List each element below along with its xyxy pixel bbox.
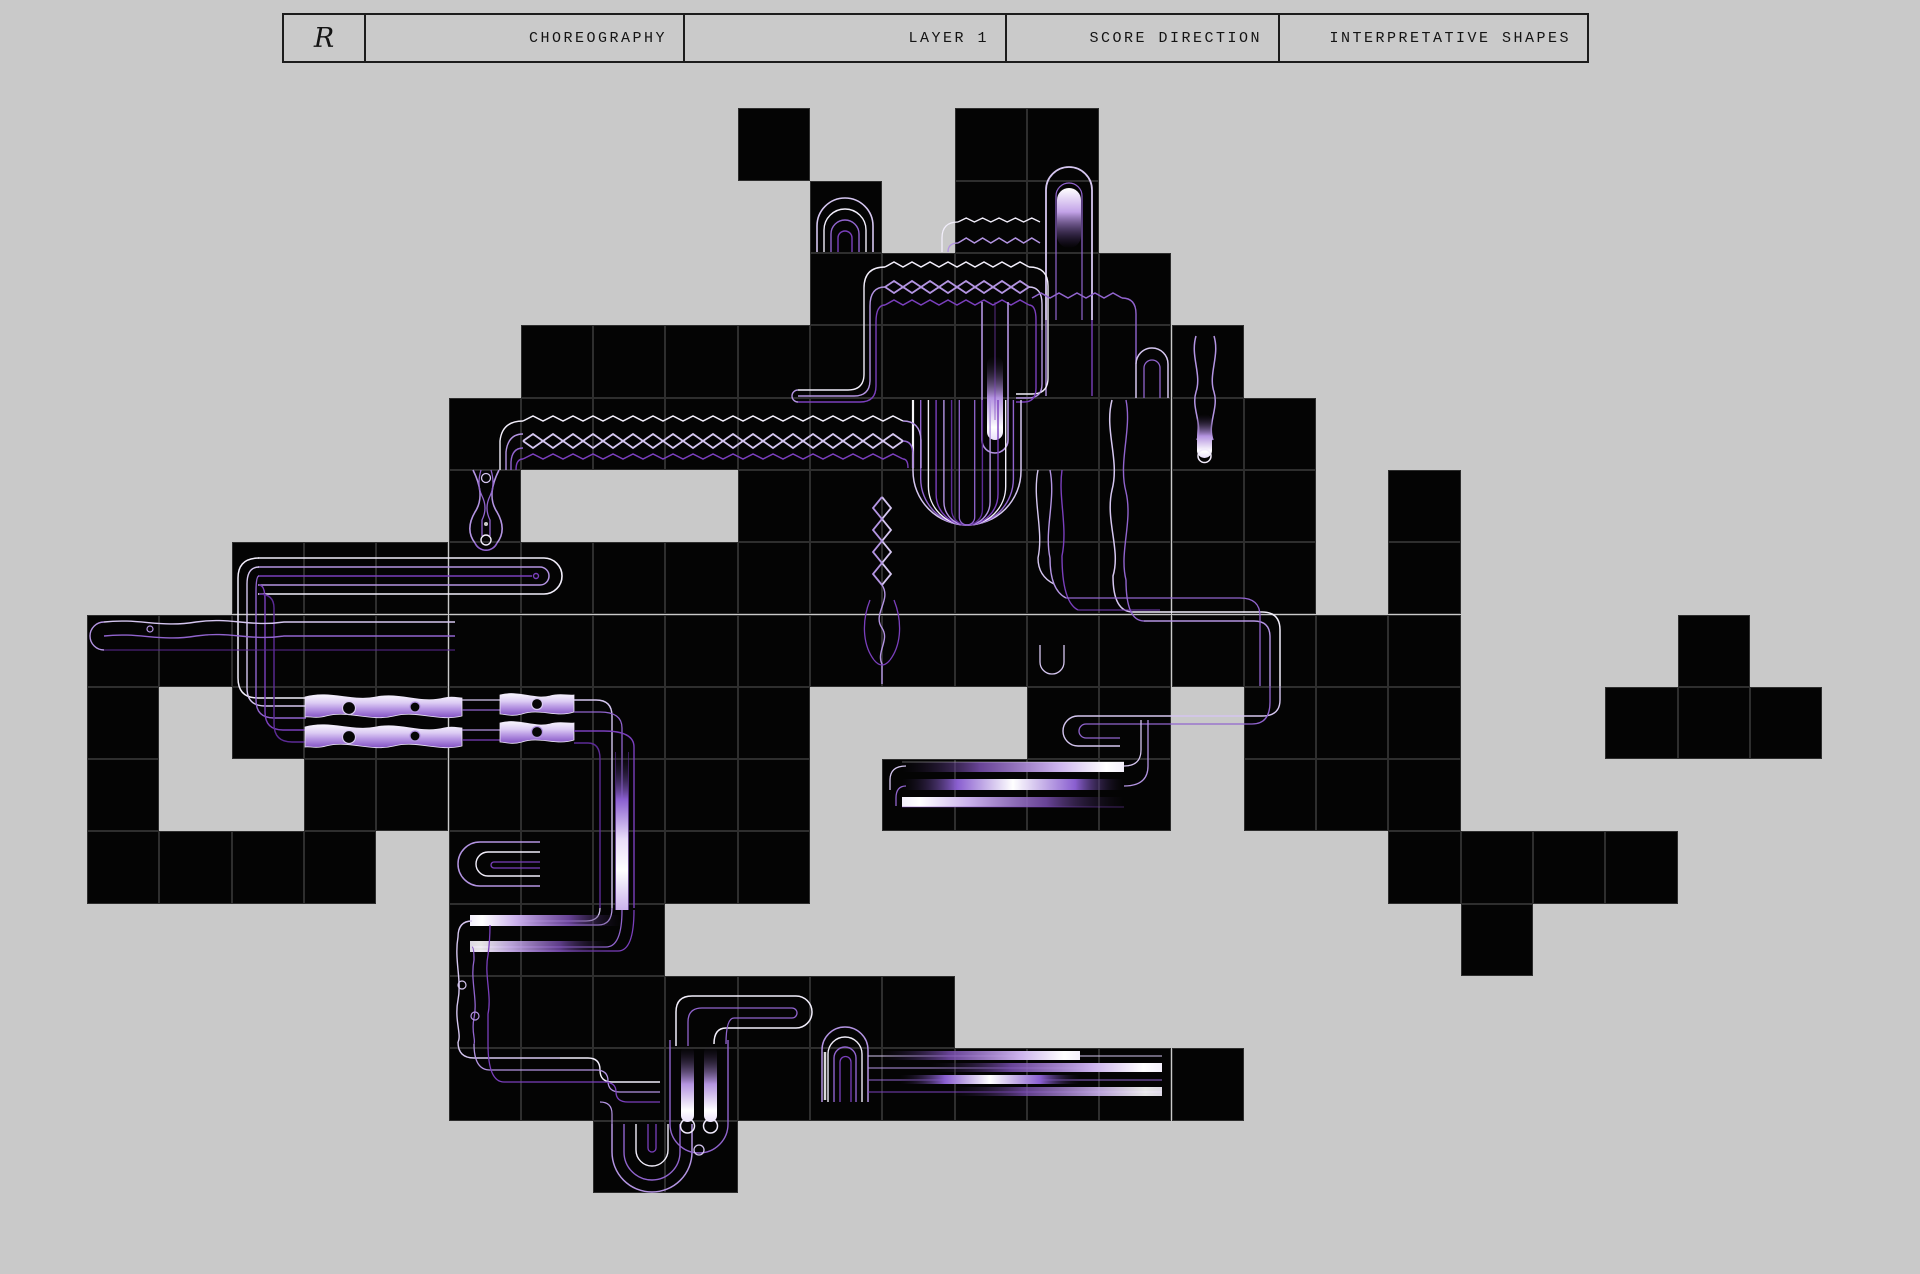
grid-tile — [1461, 831, 1533, 903]
grid-tile — [882, 253, 954, 325]
grid-tile — [738, 325, 810, 397]
grid-tile — [665, 615, 737, 687]
grid-tile — [810, 253, 882, 325]
grid-tile — [87, 615, 159, 687]
grid-tile — [1027, 398, 1099, 470]
grid-tile — [449, 759, 521, 831]
grid-tile — [738, 831, 810, 903]
grid-tile — [376, 542, 448, 614]
logo-r[interactable]: R — [284, 15, 366, 61]
grid-tile — [955, 108, 1027, 180]
grid-tile — [521, 687, 593, 759]
grid-tile — [1244, 398, 1316, 470]
grid-tile — [593, 904, 665, 976]
grid-tile — [1388, 831, 1460, 903]
grid-tile — [738, 615, 810, 687]
grid-tile — [521, 1048, 593, 1120]
grid-tile — [593, 831, 665, 903]
grid-tile — [1244, 759, 1316, 831]
grid-tile — [593, 759, 665, 831]
grid-tile — [1099, 253, 1171, 325]
grid-tile — [304, 615, 376, 687]
grid-tile — [738, 976, 810, 1048]
grid-tile — [1388, 687, 1460, 759]
grid-tile — [810, 181, 882, 253]
grid-tile — [449, 470, 521, 542]
grid-tile — [1172, 542, 1244, 614]
grid-tile — [882, 398, 954, 470]
grid-tile — [1244, 542, 1316, 614]
grid-tile — [665, 759, 737, 831]
grid-tile — [1027, 253, 1099, 325]
grid-tile — [665, 687, 737, 759]
grid-tile — [1027, 759, 1099, 831]
grid-tile — [955, 615, 1027, 687]
grid-tile — [87, 687, 159, 759]
grid-tile — [955, 181, 1027, 253]
grid-tile — [376, 687, 448, 759]
grid-tile — [1533, 831, 1605, 903]
grid-tile — [1172, 615, 1244, 687]
grid-tile — [882, 1048, 954, 1120]
grid-tile — [810, 325, 882, 397]
grid-tile — [1678, 687, 1750, 759]
grid-tile — [521, 542, 593, 614]
tab-choreography[interactable]: CHOREOGRAPHY — [366, 15, 685, 61]
grid-tile — [665, 1048, 737, 1120]
grid-tile — [449, 904, 521, 976]
grid-tile — [1461, 904, 1533, 976]
grid-tile — [1388, 470, 1460, 542]
grid-tile — [593, 1048, 665, 1120]
grid-tile — [376, 615, 448, 687]
grid-tile — [1605, 687, 1677, 759]
grid-tile — [810, 470, 882, 542]
grid-tile — [593, 687, 665, 759]
grid-tile — [449, 398, 521, 470]
tab-score-direction[interactable]: SCORE DIRECTION — [1007, 15, 1280, 61]
grid-tile — [738, 108, 810, 180]
grid-tile — [521, 904, 593, 976]
grid-tile — [1172, 325, 1244, 397]
grid-tile — [810, 976, 882, 1048]
grid-tile — [810, 398, 882, 470]
grid-tile — [1172, 398, 1244, 470]
grid-tile — [955, 470, 1027, 542]
grid-tile — [521, 325, 593, 397]
grid-tile — [738, 542, 810, 614]
grid-tile — [955, 759, 1027, 831]
grid-tile — [665, 976, 737, 1048]
grid-tile — [449, 976, 521, 1048]
grid-tile — [1316, 687, 1388, 759]
grid-tile — [159, 831, 231, 903]
grid-tile — [955, 325, 1027, 397]
grid-tile — [1316, 615, 1388, 687]
grid-tile — [304, 831, 376, 903]
grid-tile — [1099, 615, 1171, 687]
grid-tile — [449, 1048, 521, 1120]
grid-tile — [665, 398, 737, 470]
grid-tile — [810, 615, 882, 687]
score-grid — [0, 0, 1920, 1274]
grid-tile — [665, 325, 737, 397]
grid-tile — [449, 831, 521, 903]
grid-tile — [1172, 1048, 1244, 1120]
grid-tile — [738, 1048, 810, 1120]
grid-tile — [87, 831, 159, 903]
grid-tile — [593, 1121, 665, 1193]
grid-tile — [159, 615, 231, 687]
header-bar: RCHOREOGRAPHYLAYER 1SCORE DIRECTIONINTER… — [282, 13, 1589, 63]
grid-tile — [665, 542, 737, 614]
grid-tile — [376, 759, 448, 831]
grid-tile — [449, 615, 521, 687]
grid-tile — [1027, 108, 1099, 180]
grid-tile — [955, 253, 1027, 325]
grid-tile — [1750, 687, 1822, 759]
grid-tile — [1388, 615, 1460, 687]
grid-tile — [1244, 470, 1316, 542]
grid-tile — [1027, 1048, 1099, 1120]
grid-tile — [1099, 759, 1171, 831]
tab-layer-1[interactable]: LAYER 1 — [685, 15, 1007, 61]
grid-tile — [521, 398, 593, 470]
grid-tile — [1244, 615, 1316, 687]
grid-tile — [1099, 542, 1171, 614]
grid-tile — [593, 615, 665, 687]
grid-tile — [955, 398, 1027, 470]
grid-tile — [882, 759, 954, 831]
grid-tile — [1027, 615, 1099, 687]
grid-tile — [593, 542, 665, 614]
grid-tile — [1027, 470, 1099, 542]
grid-tile — [232, 687, 304, 759]
grid-tile — [1099, 325, 1171, 397]
grid-tile — [665, 831, 737, 903]
grid-tile — [665, 1121, 737, 1193]
grid-tile — [738, 470, 810, 542]
grid-tile — [1027, 687, 1099, 759]
grid-tile — [882, 470, 954, 542]
grid-tile — [593, 976, 665, 1048]
grid-tile — [1605, 831, 1677, 903]
grid-tile — [955, 1048, 1027, 1120]
grid-tile — [449, 687, 521, 759]
grid-tile — [1388, 759, 1460, 831]
grid-tile — [521, 615, 593, 687]
grid-tile — [1388, 542, 1460, 614]
grid-tile — [593, 398, 665, 470]
grid-tile — [521, 976, 593, 1048]
grid-tile — [1027, 542, 1099, 614]
grid-tile — [810, 1048, 882, 1120]
grid-tile — [304, 687, 376, 759]
grid-tile — [882, 325, 954, 397]
grid-tile — [738, 687, 810, 759]
grid-tile — [521, 759, 593, 831]
grid-tile — [304, 759, 376, 831]
grid-tile — [232, 831, 304, 903]
grid-tile — [738, 398, 810, 470]
grid-tile — [1172, 470, 1244, 542]
grid-tile — [1678, 615, 1750, 687]
grid-tile — [232, 615, 304, 687]
grid-tile — [1099, 470, 1171, 542]
grid-tile — [521, 831, 593, 903]
grid-tile — [1316, 759, 1388, 831]
grid-tile — [593, 325, 665, 397]
grid-tile — [1099, 687, 1171, 759]
grid-tile — [882, 615, 954, 687]
grid-tile — [449, 542, 521, 614]
grid-tile — [882, 976, 954, 1048]
grid-tile — [87, 759, 159, 831]
grid-tile — [738, 759, 810, 831]
grid-tile — [304, 542, 376, 614]
grid-tile — [1027, 181, 1099, 253]
grid-tile — [232, 542, 304, 614]
grid-tile — [1244, 687, 1316, 759]
grid-tile — [810, 542, 882, 614]
grid-tile — [1099, 1048, 1171, 1120]
grid-tile — [1099, 398, 1171, 470]
grid-tile — [1027, 325, 1099, 397]
tab-interpretative-shapes[interactable]: INTERPRETATIVE SHAPES — [1280, 15, 1587, 61]
grid-tile — [955, 542, 1027, 614]
grid-tile — [882, 542, 954, 614]
